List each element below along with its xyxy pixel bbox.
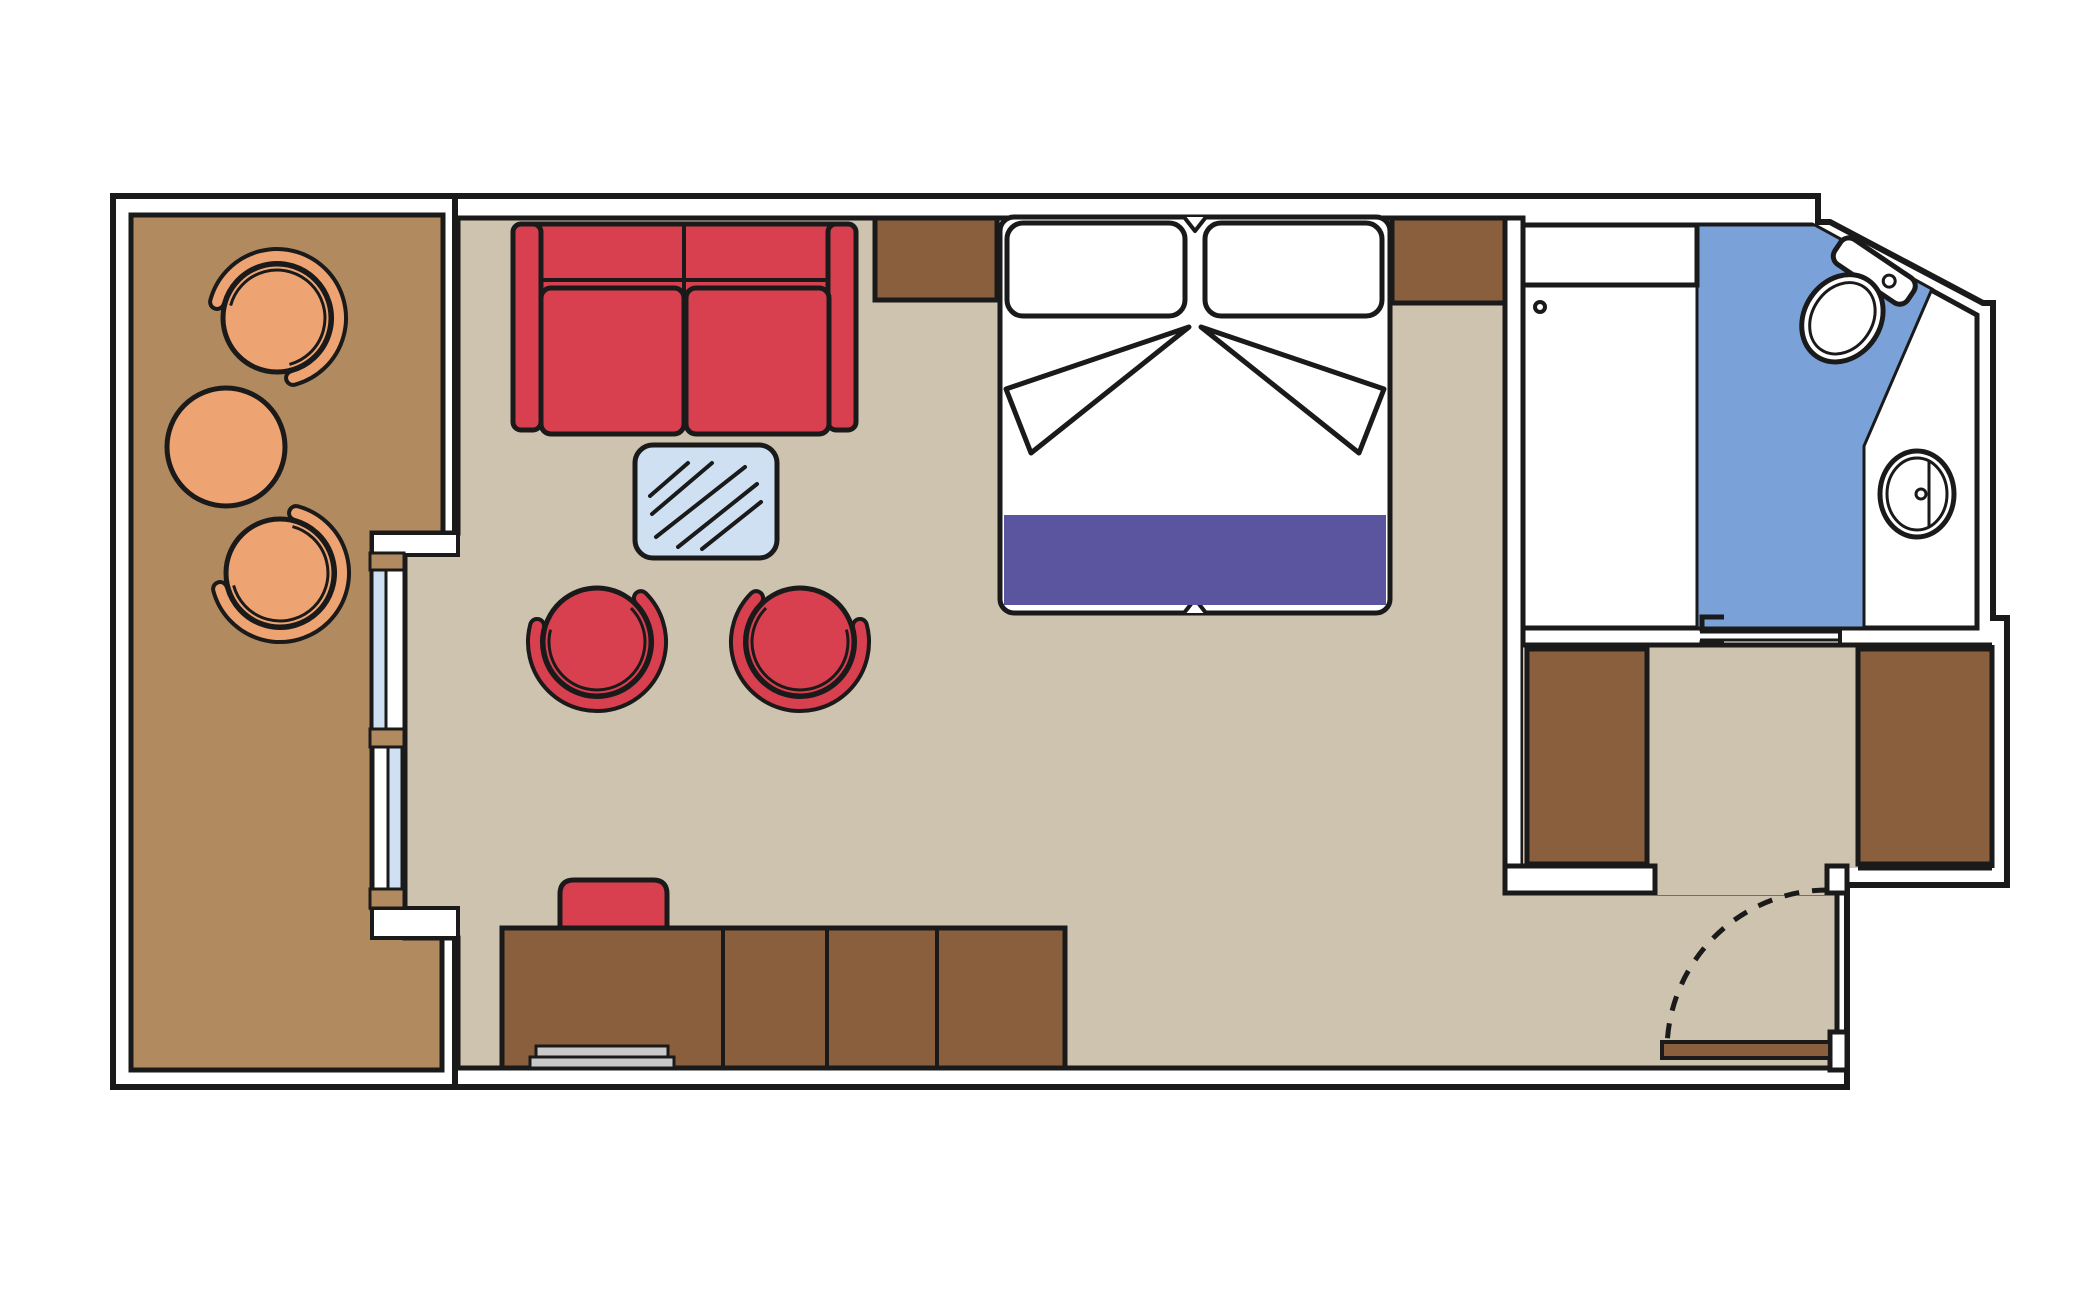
pillow-left bbox=[1007, 223, 1185, 316]
door-frame-cap-top bbox=[370, 553, 404, 570]
entrance-door-jamb-bottom bbox=[1830, 1032, 1847, 1070]
desk-stool bbox=[560, 880, 667, 928]
washbasin bbox=[1880, 451, 1954, 537]
corridor-floor-passage bbox=[1647, 645, 1837, 895]
nightstand-right bbox=[1392, 218, 1505, 303]
sofa-arm-left bbox=[513, 224, 541, 430]
wardrobe-right bbox=[1858, 649, 1992, 864]
pillow-right bbox=[1205, 223, 1382, 316]
balcony-table bbox=[167, 388, 285, 506]
door-frame-cap-middle bbox=[370, 729, 404, 747]
desk-tray-bottom bbox=[530, 1057, 674, 1068]
nightstand-left bbox=[875, 218, 997, 300]
entrance-door-jamb-top bbox=[1827, 866, 1847, 893]
sofa bbox=[513, 224, 856, 434]
door-frame-cap-bottom bbox=[370, 889, 404, 908]
coffee-table bbox=[635, 445, 777, 558]
basin-drain bbox=[1916, 489, 1926, 499]
sofa-arm-right bbox=[828, 224, 856, 430]
shower-tray bbox=[1523, 225, 1697, 285]
shower-door-knob bbox=[1535, 302, 1545, 312]
bed-runner bbox=[1004, 515, 1386, 605]
balcony-door-step-lower bbox=[372, 908, 458, 938]
floor-plan-drawing bbox=[0, 0, 2099, 1299]
double-bed bbox=[1000, 217, 1390, 613]
entrance-door-leaf bbox=[1662, 1042, 1830, 1058]
floor-plan-canvas bbox=[0, 0, 2099, 1299]
glass-panel-outer bbox=[372, 570, 386, 729]
wardrobe-left bbox=[1527, 649, 1647, 864]
desk-tray-top bbox=[536, 1046, 668, 1057]
coffee-table-glass-top bbox=[635, 445, 777, 558]
wall-stub-left bbox=[1505, 866, 1655, 893]
bedroom-bathroom-wall bbox=[1505, 218, 1523, 885]
corridor-floor-right bbox=[1837, 645, 1858, 868]
glass-panel-inner bbox=[388, 747, 402, 889]
sofa-seat-right bbox=[686, 288, 829, 434]
sofa-seat-left bbox=[541, 288, 684, 434]
